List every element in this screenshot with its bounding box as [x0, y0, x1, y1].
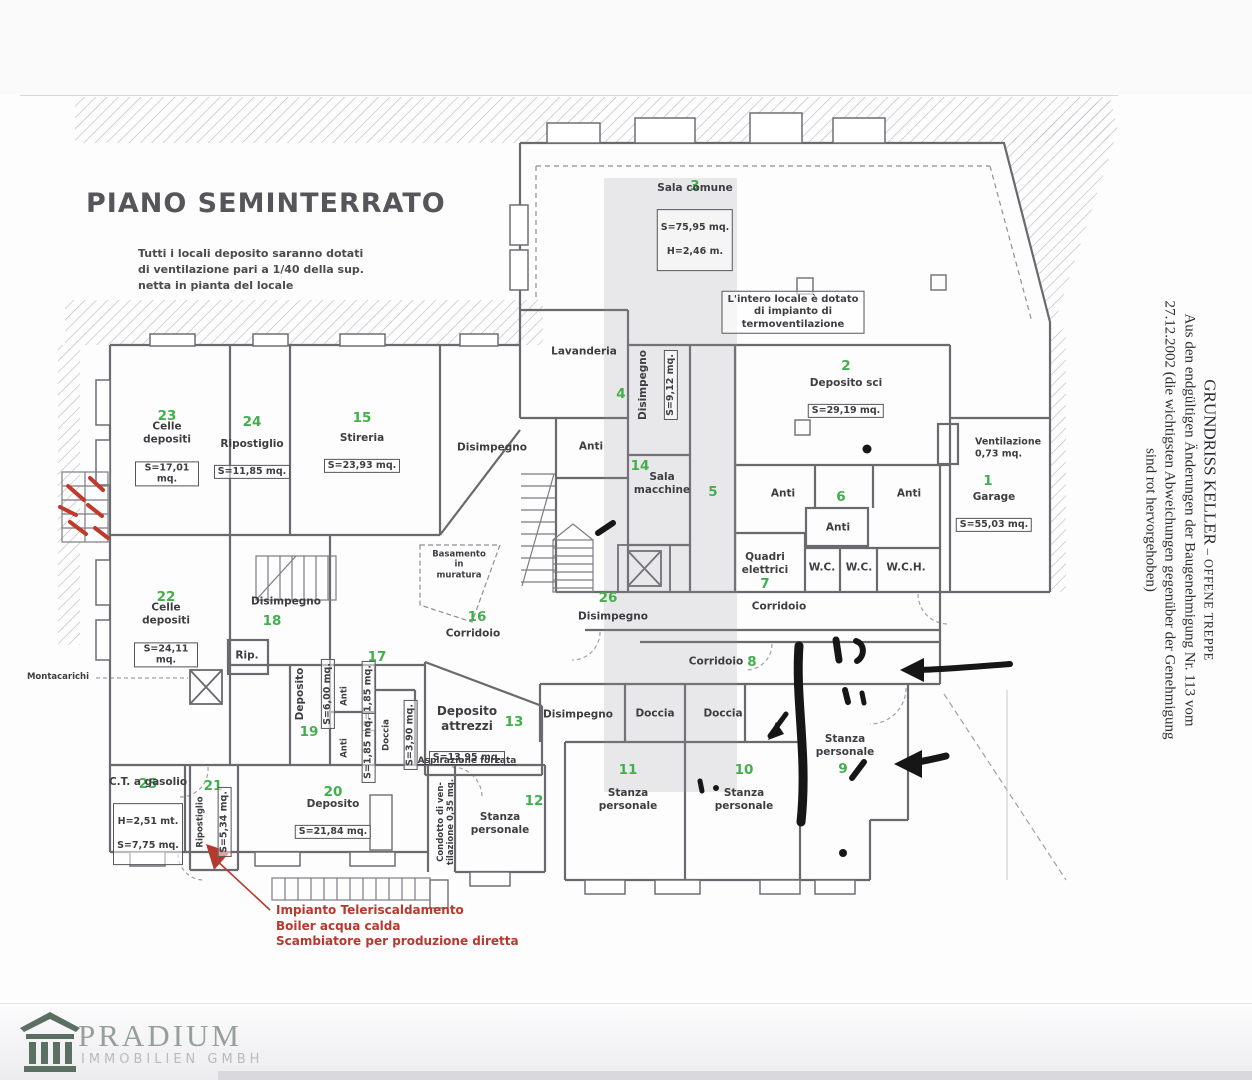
room-label: Garage S=55,03 mq.: [956, 478, 1032, 532]
side-note-line: sind rot hervorgehoben): [1140, 248, 1160, 793]
room-label: Doccia: [635, 694, 674, 733]
top-margin-strip: [0, 0, 1252, 95]
room-label: Quadri elettrici: [732, 538, 798, 591]
room-label: Disimpegno S=9,12 mq.: [624, 350, 678, 420]
room-number: 5: [708, 484, 717, 500]
room-label: W.C.: [809, 548, 835, 587]
room-label: Sala comune S=75,95 mq. H=2,46 m.: [657, 169, 733, 271]
room-label: Disimpegno: [251, 582, 321, 621]
room-label: Corridoio: [689, 642, 743, 681]
room-label: Doccia S=3,90 mq.: [371, 700, 418, 770]
room-label: Anti: [826, 508, 850, 547]
room-label: Stanza personale: [704, 774, 784, 827]
room-label: Sala macchine: [626, 458, 698, 511]
red-annotation-note: Impianto Teleriscaldamento Boiler acqua …: [276, 903, 519, 950]
room-label: Deposito S=21,84 mq.: [295, 785, 371, 839]
room-label: Lavanderia: [551, 332, 617, 371]
room-number: 8: [747, 654, 756, 670]
plan-note: Tutti i locali deposito saranno dotati d…: [138, 246, 364, 294]
room-label: Anti: [897, 474, 921, 513]
side-note-title: GRUNDRISS KELLER: [1200, 379, 1219, 545]
red-marker-strokes: [60, 478, 108, 538]
side-note-line: 27.12.2002 (die wichtigsten Abweichungen…: [1159, 248, 1179, 793]
masonry-base-label: Basamento in muratura: [432, 538, 486, 591]
room-number: 6: [836, 489, 845, 505]
duct-label: Condotto di ven- tilazione 0,35 mq.: [425, 779, 468, 865]
room-label: Corridoio: [752, 587, 806, 626]
side-note-title-suffix: – OFFENE TREPPE: [1201, 545, 1215, 661]
room-label: Deposito S=6,00 mq.: [281, 659, 335, 729]
brand-name: PRADIUM: [78, 1018, 242, 1054]
side-note-german: GRUNDRISS KELLER – OFFENE TREPPE Aus den…: [1140, 248, 1221, 793]
plan-title: PIANO SEMINTERRATO: [86, 188, 446, 219]
room-label: W.C.H.: [886, 548, 925, 587]
room-label: Celle depositi S=17,01 mq.: [135, 407, 199, 486]
room-label: Anti S=1,85 mq.: [329, 713, 376, 783]
room-label: Rip.: [235, 636, 258, 675]
room-label: Deposito sci S=29,19 mq.: [808, 364, 884, 418]
hoist-label: Montacarichi: [27, 661, 89, 693]
room-label: Anti: [771, 474, 795, 513]
room-label: Disimpegno: [578, 597, 648, 636]
room-label: Stireria S=23,93 mq.: [322, 419, 402, 473]
scanned-floorplan-page: PIANO SEMINTERRATO Tutti i locali deposi…: [0, 0, 1252, 1080]
room-label: Ripostiglio S=5,34 mq.: [185, 787, 232, 857]
room-label: W.C.: [846, 548, 872, 587]
room-label: Doccia: [703, 694, 742, 733]
room-label: Celle depositi S=24,11 mq.: [134, 588, 198, 667]
room-label: Stanza personale: [588, 774, 668, 827]
room-label: Corridoio: [446, 614, 500, 653]
side-note-line: Aus den endgültigen Änderungen der Bauge…: [1179, 248, 1199, 793]
footer-bottom-bar: [218, 1071, 1252, 1080]
termoventilazione-note: L'intero locale è dotato di impianto di …: [722, 278, 865, 347]
top-divider-line: [20, 95, 1118, 96]
forced-ventilation-label: Aspirazione forzata: [418, 745, 517, 779]
brand-subtitle: IMMOBILIEN GMBH: [81, 1052, 263, 1067]
room-label: Disimpegno: [457, 428, 527, 467]
room-label: C.T. a gasolio H=2,51 mt. S=7,75 mq.: [106, 763, 190, 865]
room-label: Anti: [579, 427, 603, 466]
room-label: Disimpegno: [543, 695, 613, 734]
room-label: Stanza personale: [460, 798, 540, 851]
room-label: Ripostiglio S=11,85 mq.: [205, 425, 299, 479]
room-label: Stanza personale: [803, 720, 887, 773]
ventilation-label: Ventilazione 0,73 mq.: [975, 424, 1041, 472]
